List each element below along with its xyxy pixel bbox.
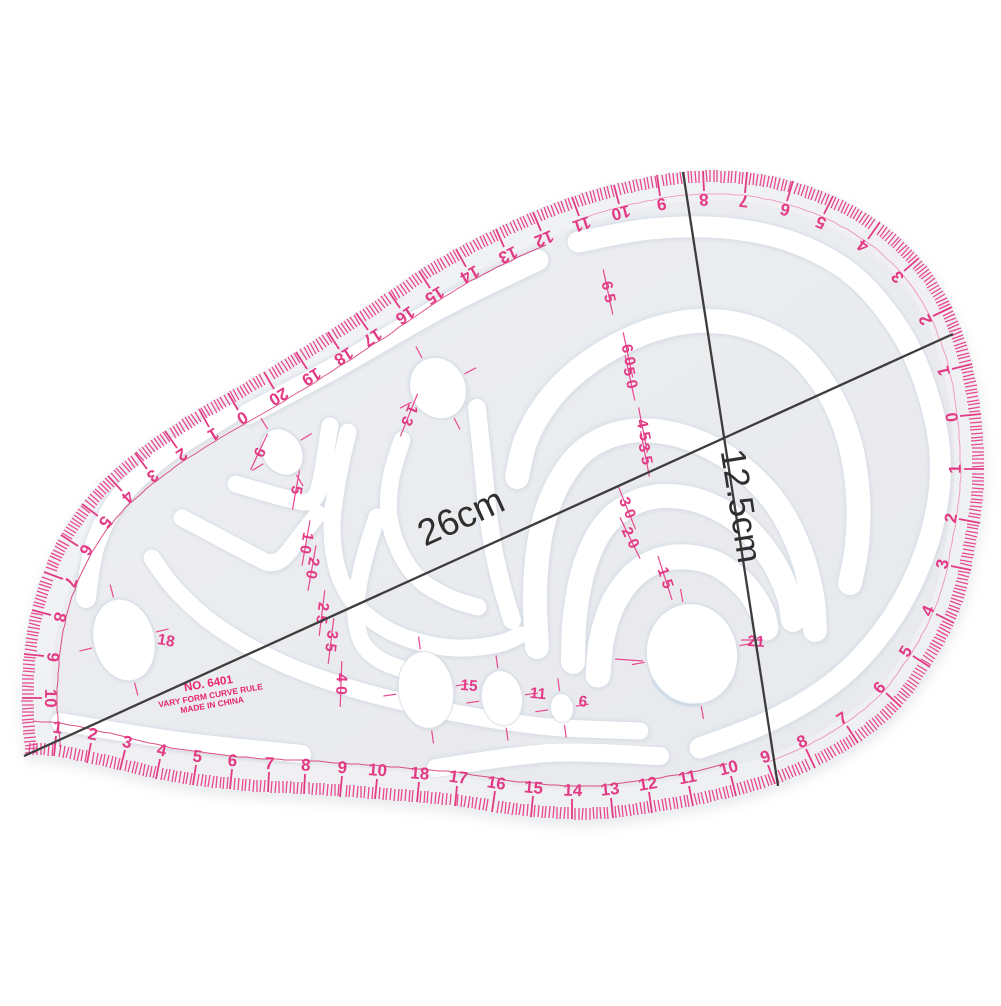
svg-text:10: 10 <box>41 689 60 708</box>
svg-text:18: 18 <box>156 631 176 651</box>
svg-text:9: 9 <box>43 651 63 662</box>
svg-text:18: 18 <box>410 763 430 783</box>
svg-text:9: 9 <box>337 758 348 778</box>
svg-text:8: 8 <box>301 755 312 775</box>
svg-text:7: 7 <box>264 754 274 773</box>
svg-text:8: 8 <box>699 190 709 209</box>
svg-text:15: 15 <box>523 777 544 798</box>
svg-text:1: 1 <box>946 464 965 474</box>
svg-text:16: 16 <box>486 772 508 794</box>
svg-text:12: 12 <box>637 773 659 795</box>
svg-text:3 5: 3 5 <box>321 629 341 653</box>
svg-text:6: 6 <box>227 751 238 771</box>
svg-text:11: 11 <box>529 685 547 703</box>
svg-text:10: 10 <box>367 760 387 780</box>
svg-text:17: 17 <box>448 767 469 788</box>
svg-text:14: 14 <box>563 781 583 801</box>
svg-text:15: 15 <box>460 677 479 695</box>
svg-text:4 0: 4 0 <box>332 673 350 695</box>
svg-text:11: 11 <box>677 766 698 788</box>
svg-text:13: 13 <box>600 779 621 800</box>
